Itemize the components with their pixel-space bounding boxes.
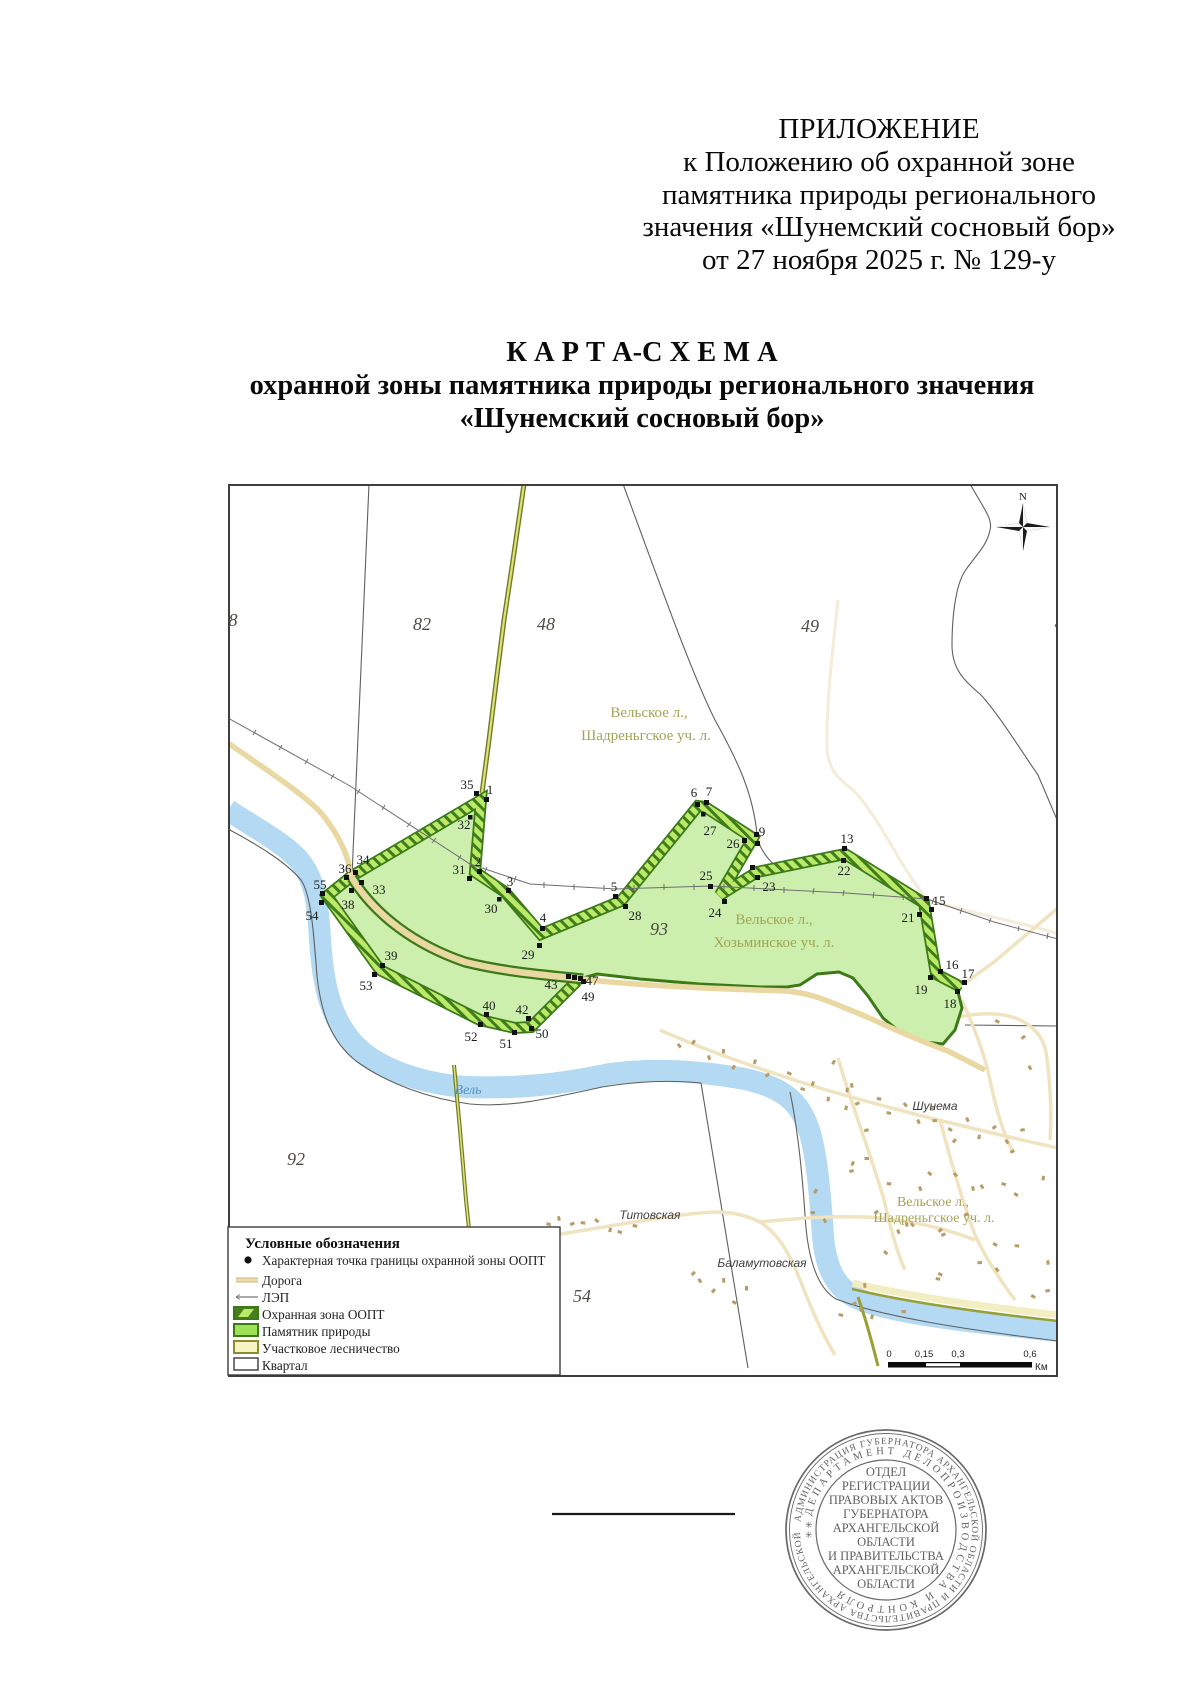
svg-text:27: 27 [704,823,718,838]
svg-text:4: 4 [540,910,547,925]
svg-text:50: 50 [536,1026,549,1041]
svg-text:И ПРАВИТЕЛЬСТВА: И ПРАВИТЕЛЬСТВА [828,1549,944,1563]
svg-text:17: 17 [962,966,976,981]
svg-text:38: 38 [342,897,355,912]
svg-text:Вельское л.,: Вельское л., [735,912,812,928]
svg-text:Квартал: Квартал [262,1358,308,1373]
svg-text:40: 40 [483,998,496,1013]
svg-text:21: 21 [902,910,915,925]
svg-text:55: 55 [314,877,327,892]
svg-text:Шунема: Шунема [912,1099,957,1113]
svg-text:✳: ✳ [805,1530,813,1540]
svg-text:47: 47 [586,973,600,988]
svg-text:ПРАВОВЫХ АКТОВ: ПРАВОВЫХ АКТОВ [829,1493,943,1507]
svg-text:35: 35 [461,777,474,792]
svg-text:Вельское л.,: Вельское л., [897,1195,969,1210]
svg-text:22: 22 [838,863,851,878]
svg-text:5: 5 [611,879,618,894]
svg-text:53: 53 [360,978,373,993]
svg-text:49: 49 [801,616,819,636]
svg-text:Шадреньгское уч. л.: Шадреньгское уч. л. [581,728,711,744]
svg-text:54: 54 [573,1286,591,1306]
svg-text:28: 28 [629,908,642,923]
svg-text:23: 23 [763,879,776,894]
svg-text:Дорога: Дорога [262,1273,302,1288]
svg-text:Вельское л.,: Вельское л., [610,705,687,721]
svg-text:0,15: 0,15 [915,1349,934,1360]
svg-text:31: 31 [453,862,466,877]
svg-text:33: 33 [373,882,386,897]
svg-text:30: 30 [485,901,498,916]
svg-text:54: 54 [306,908,320,923]
svg-text:АРХАНГЕЛЬСКОЙ: АРХАНГЕЛЬСКОЙ [833,1563,940,1577]
svg-text:16: 16 [946,957,960,972]
svg-text:ЛЭП: ЛЭП [262,1290,290,1305]
svg-text:13: 13 [841,831,854,846]
svg-text:Титовская: Титовская [620,1208,681,1222]
svg-text:ГУБЕРНАТОРА: ГУБЕРНАТОРА [843,1507,929,1521]
svg-text:24: 24 [709,905,723,920]
svg-text:5: 5 [1055,611,1064,631]
svg-text:82: 82 [413,614,431,634]
svg-text:Км: Км [1035,1362,1048,1373]
svg-text:49: 49 [582,989,595,1004]
svg-text:0,3: 0,3 [951,1349,964,1360]
svg-text:N: N [1019,491,1027,503]
svg-text:25: 25 [700,868,713,883]
svg-text:6: 6 [691,785,698,800]
svg-text:19: 19 [915,982,928,997]
svg-text:36: 36 [339,861,353,876]
svg-text:ОБЛАСТИ: ОБЛАСТИ [857,1535,915,1549]
svg-text:92: 92 [287,1149,305,1169]
svg-text:48: 48 [537,614,555,634]
svg-text:2: 2 [475,854,482,869]
svg-text:42: 42 [516,1002,529,1017]
svg-text:34: 34 [357,852,371,867]
svg-text:26: 26 [727,836,741,851]
svg-text:✳: ✳ [805,1520,813,1530]
svg-text:18: 18 [944,996,957,1011]
svg-text:Вель: Вель [455,1083,482,1098]
svg-text:Охранная зона ООПТ: Охранная зона ООПТ [262,1307,384,1322]
svg-text:Участковое лесничество: Участковое лесничество [262,1341,400,1356]
svg-text:1: 1 [487,782,494,797]
svg-text:Хозьминское уч. л.: Хозьминское уч. л. [714,935,835,951]
svg-text:7: 7 [706,784,713,799]
svg-text:Памятник природы: Памятник природы [262,1324,371,1339]
svg-text:Баламутовская: Баламутовская [717,1256,807,1270]
svg-text:15: 15 [933,893,946,908]
svg-text:9: 9 [759,824,766,839]
svg-text:ОТДЕЛ: ОТДЕЛ [866,1465,907,1479]
svg-text:3: 3 [507,874,514,889]
svg-text:ОБЛАСТИ: ОБЛАСТИ [857,1577,915,1591]
svg-text:0: 0 [886,1349,891,1360]
svg-text:52: 52 [465,1029,478,1044]
svg-text:29: 29 [522,947,535,962]
svg-text:39: 39 [385,948,398,963]
svg-text:93: 93 [650,919,668,939]
svg-text:32: 32 [458,817,471,832]
svg-text:51: 51 [500,1036,513,1051]
svg-text:Шадреньгское уч. л.: Шадреньгское уч. л. [873,1211,994,1226]
svg-text:Условные обозначения: Условные обозначения [245,1236,400,1252]
svg-text:РЕГИСТРАЦИИ: РЕГИСТРАЦИИ [842,1479,930,1493]
svg-text:АРХАНГЕЛЬСКОЙ: АРХАНГЕЛЬСКОЙ [833,1521,940,1535]
svg-text:43: 43 [545,977,558,992]
svg-text:0,6: 0,6 [1023,1349,1036,1360]
svg-text:Характерная точка границы охра: Характерная точка границы охранной зоны … [262,1253,546,1268]
